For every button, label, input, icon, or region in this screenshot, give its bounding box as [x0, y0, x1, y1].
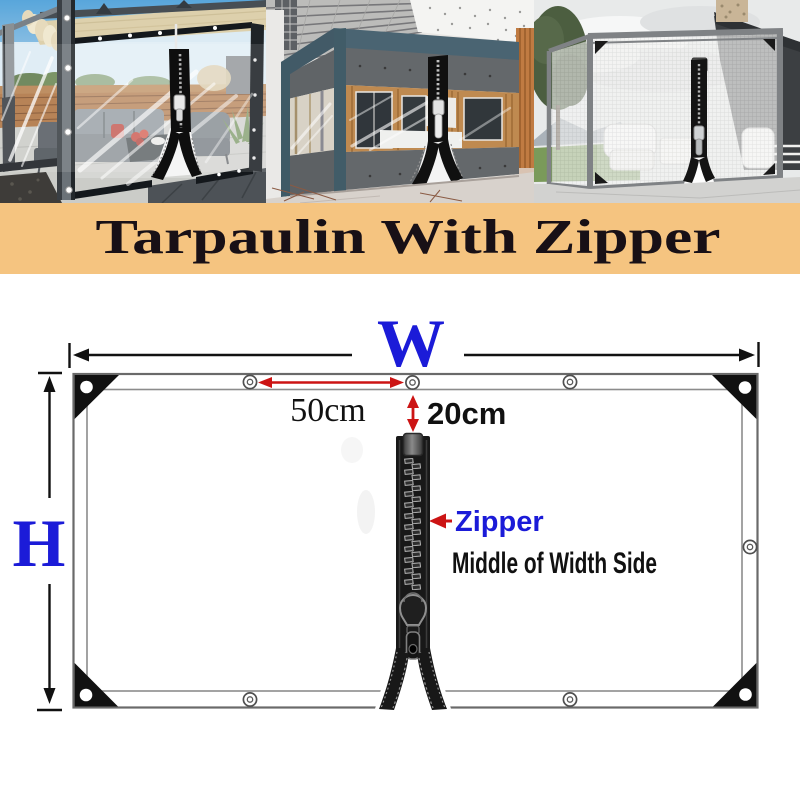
svg-text:Tarpaulin With Zipper: Tarpaulin With Zipper	[96, 209, 721, 264]
svg-text:H: H	[13, 505, 66, 581]
svg-text:Zipper: Zipper	[455, 506, 544, 538]
svg-text:50cm: 50cm	[290, 392, 366, 429]
svg-text:20cm: 20cm	[427, 396, 506, 431]
svg-text:W: W	[377, 305, 445, 381]
svg-text:Middle of Width Side: Middle of Width Side	[452, 547, 657, 580]
